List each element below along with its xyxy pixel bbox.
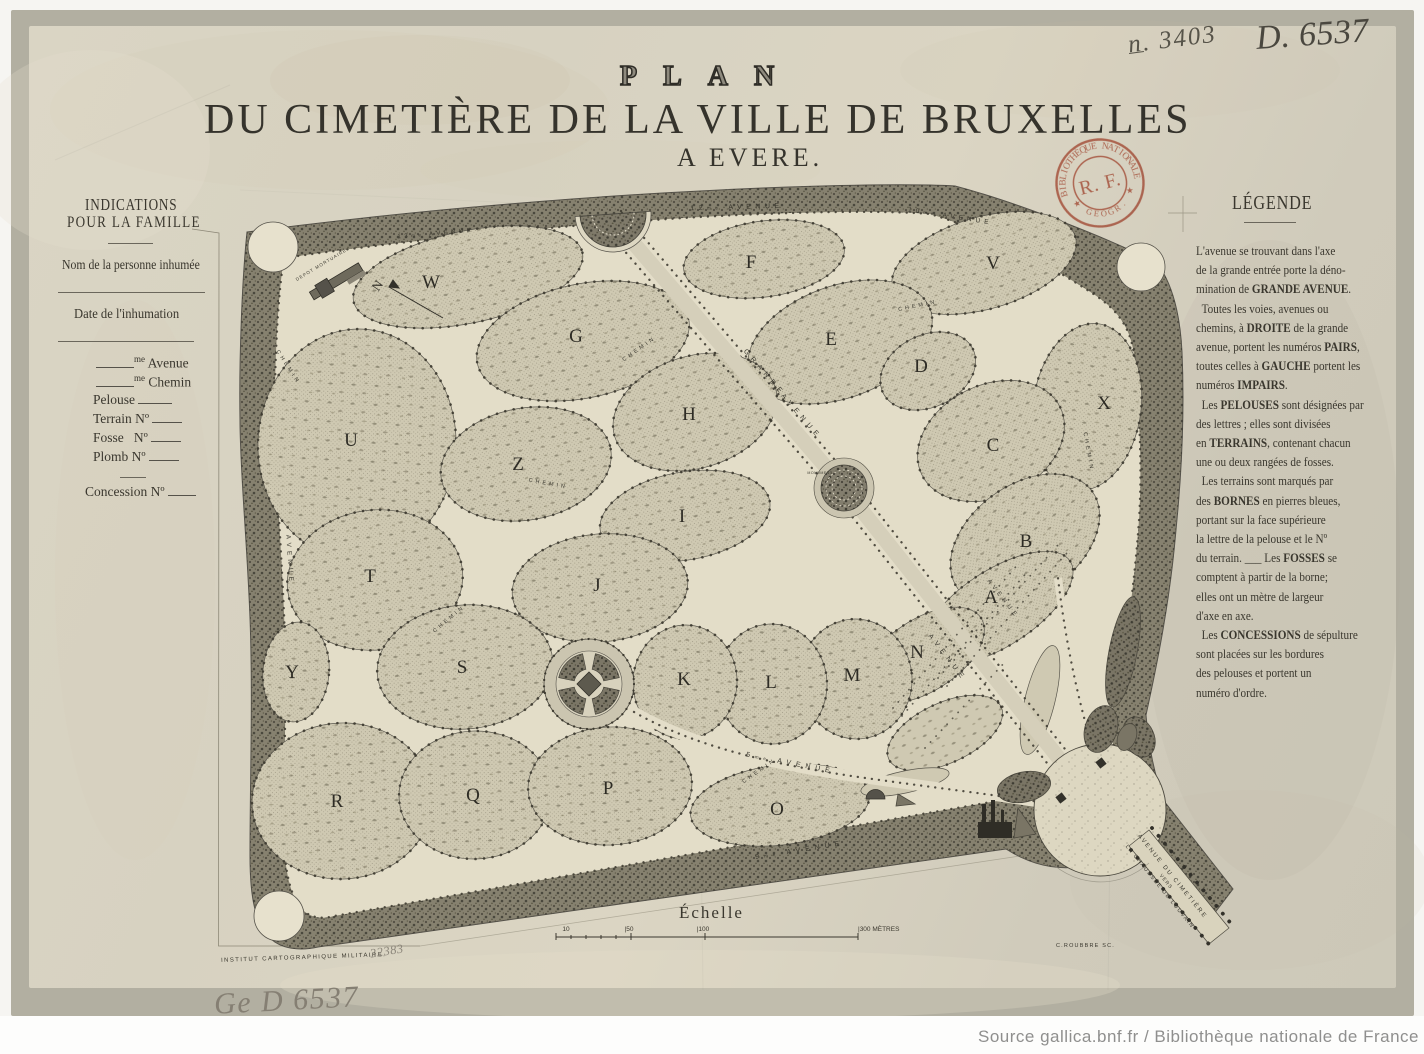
svg-text:O: O: [770, 799, 784, 820]
svg-text:E: E: [1093, 208, 1099, 219]
svg-text:T: T: [364, 566, 376, 587]
svg-text:V: V: [986, 253, 1000, 274]
svg-text:C: C: [987, 435, 1000, 456]
svg-text:G: G: [569, 326, 583, 347]
svg-text:E: E: [825, 329, 837, 350]
svg-text:|50: |50: [625, 926, 634, 933]
svg-text:.: .: [1118, 199, 1127, 207]
svg-text:L: L: [765, 672, 777, 693]
svg-text:I: I: [679, 506, 685, 527]
svg-text:|300 MÈTRES: |300 MÈTRES: [858, 924, 900, 933]
svg-text:Z: Z: [512, 454, 524, 475]
svg-text:X: X: [1097, 393, 1111, 414]
svg-text:Y: Y: [285, 662, 299, 683]
svg-text:F: F: [746, 252, 757, 273]
svg-text:B: B: [1020, 531, 1033, 552]
svg-text:10: 10: [562, 926, 570, 933]
svg-text:E: E: [1130, 172, 1141, 180]
svg-text:H: H: [682, 404, 696, 425]
svg-text:D: D: [914, 356, 928, 377]
svg-text:J: J: [593, 575, 600, 596]
svg-text:MONUMENT: MONUMENT: [807, 471, 832, 475]
svg-text:M: M: [844, 665, 861, 686]
svg-text:K: K: [677, 669, 691, 690]
svg-text:U: U: [344, 430, 358, 451]
svg-text:R: R: [331, 791, 344, 812]
svg-text:P: P: [603, 778, 614, 799]
svg-text:|100: |100: [697, 926, 710, 933]
svg-text:Q: Q: [466, 785, 480, 806]
svg-text:W: W: [422, 272, 440, 293]
svg-text:N: N: [910, 642, 924, 663]
svg-text:S: S: [457, 657, 468, 678]
svg-text:★: ★: [1124, 185, 1136, 195]
svg-text:R. F.: R. F.: [1077, 168, 1124, 200]
